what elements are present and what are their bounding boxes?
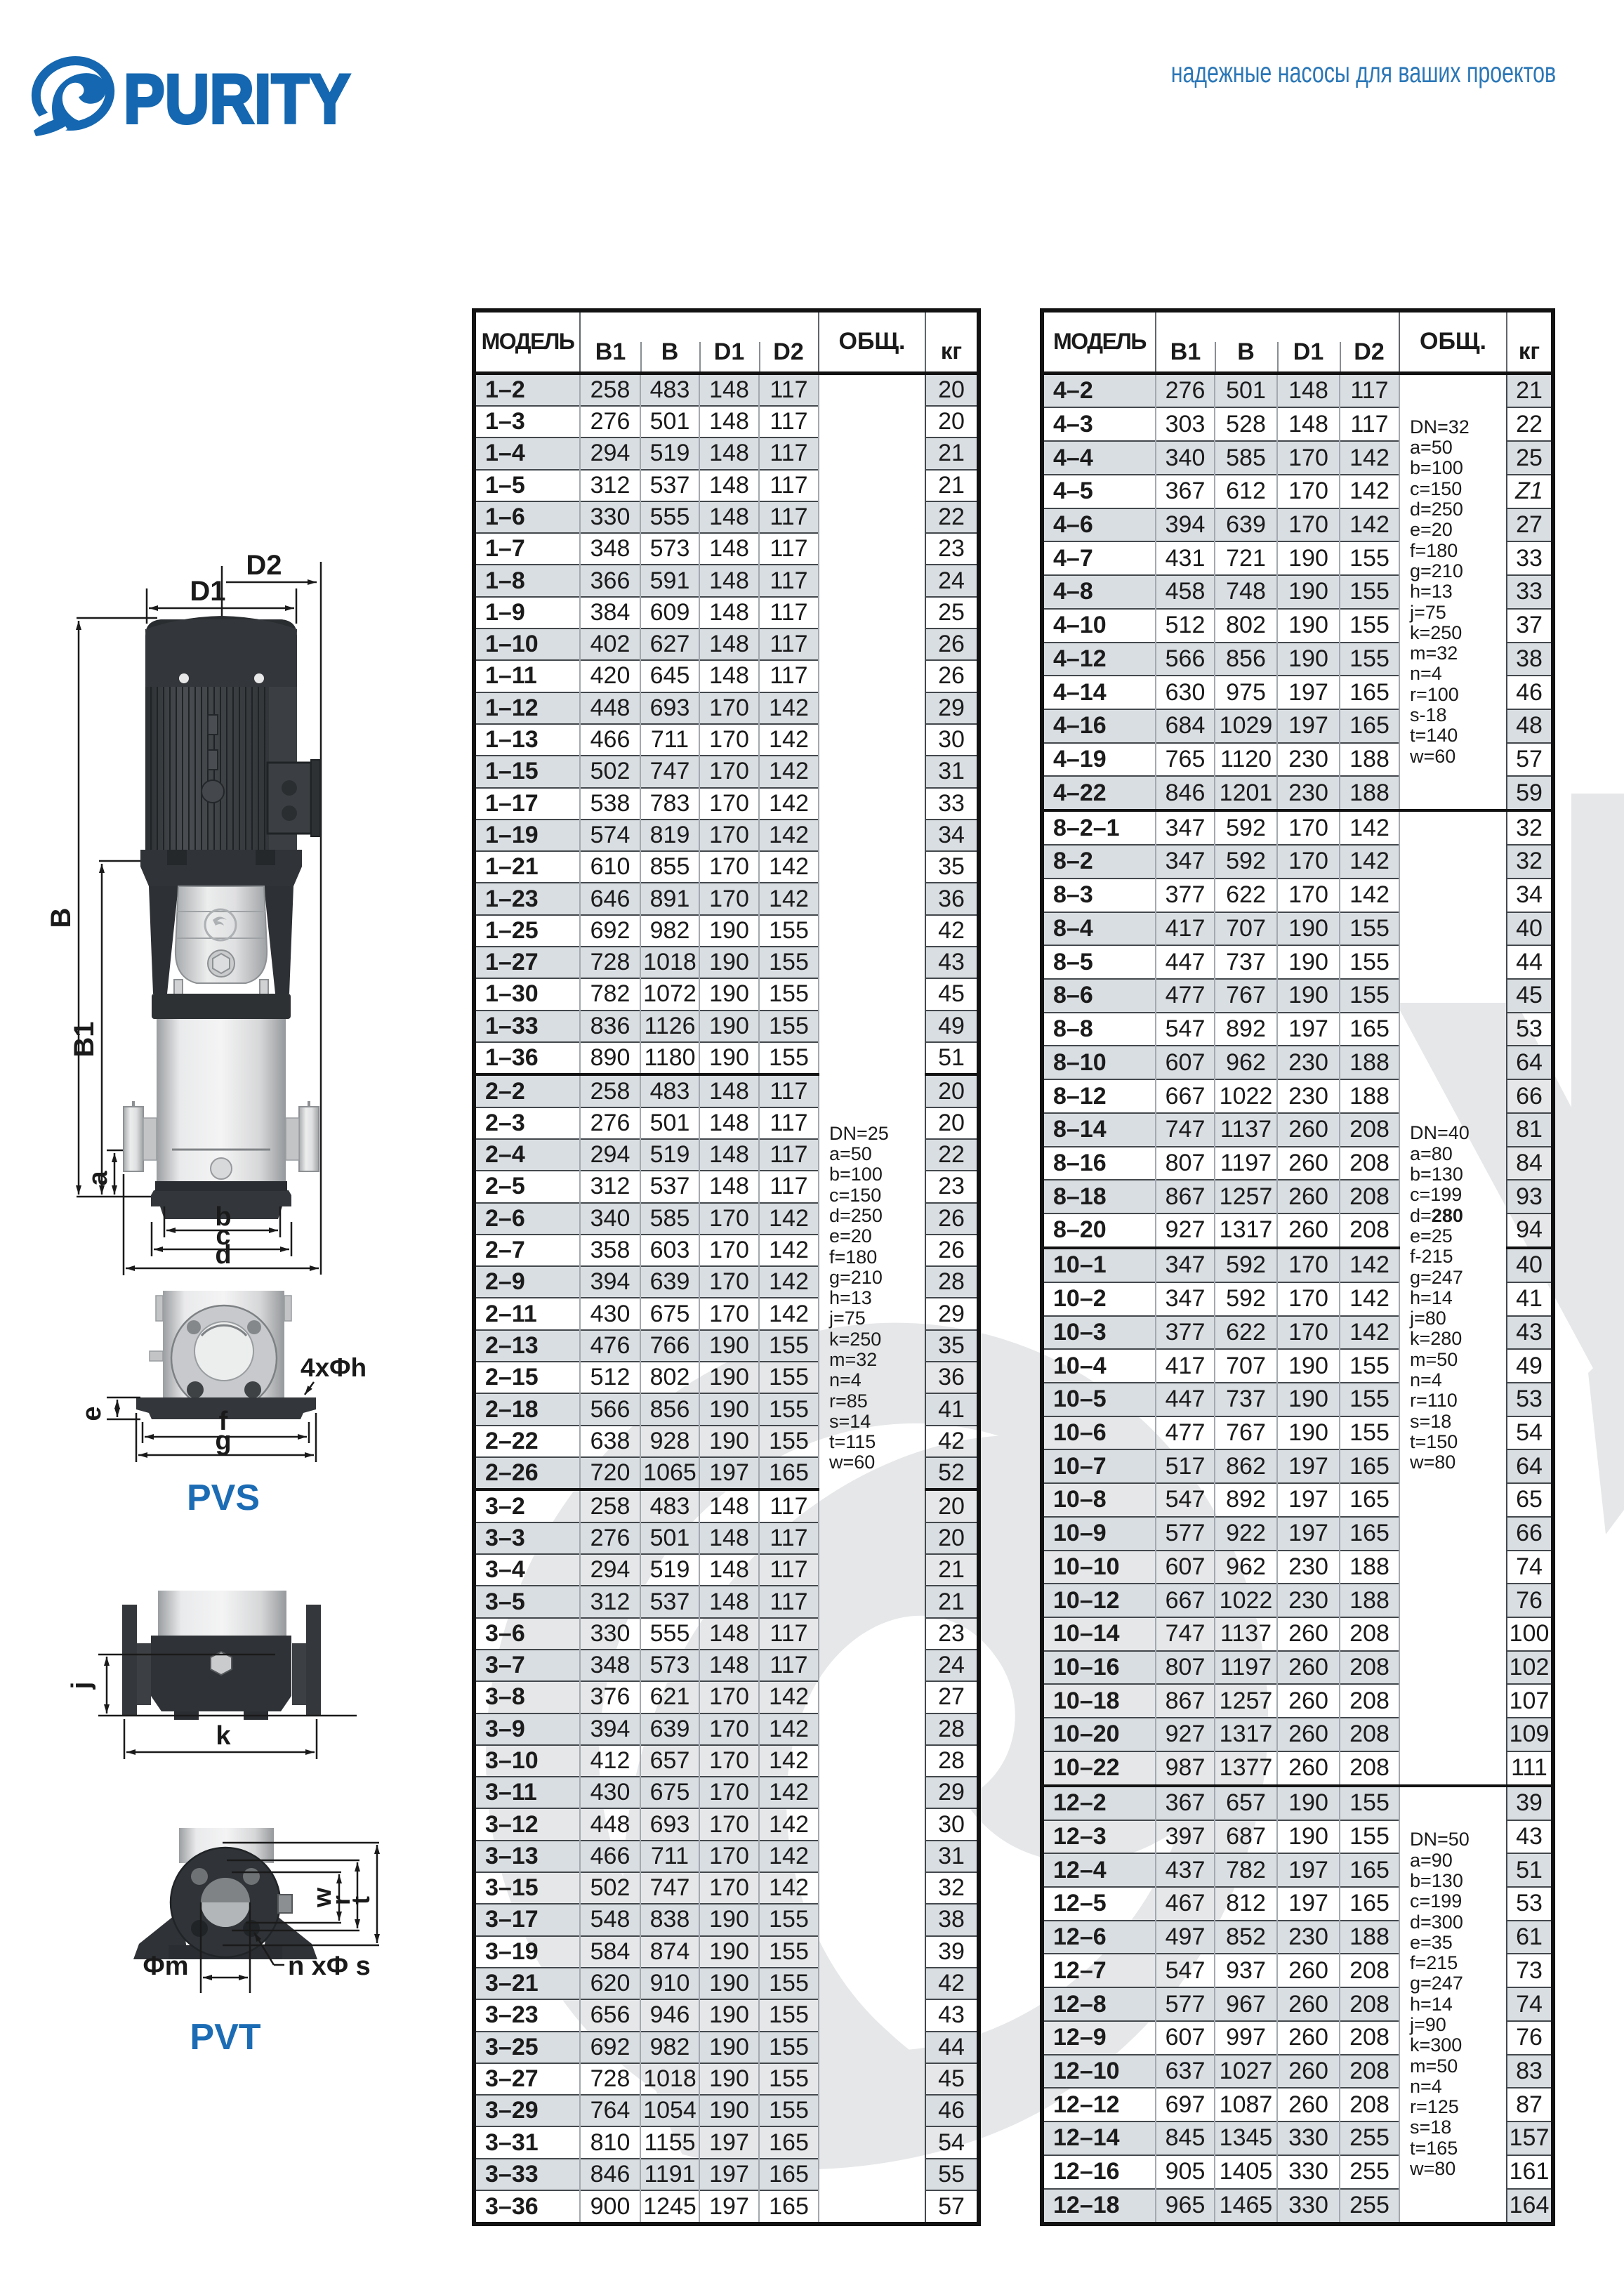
svg-text:PURITY: PURITY (124, 60, 350, 138)
svg-text:j: j (67, 1682, 96, 1690)
svg-text:Φm: Φm (143, 1952, 189, 1981)
svg-text:d: d (215, 1240, 231, 1270)
svg-text:g: g (215, 1426, 231, 1456)
svg-text:n xΦ s: n xΦ s (288, 1952, 371, 1981)
svg-text:PVS: PVS (187, 1478, 260, 1518)
svg-text:D1: D1 (190, 576, 225, 607)
svg-text:t: t (346, 1896, 375, 1905)
svg-text:B1: B1 (69, 1021, 100, 1057)
svg-text:PVT: PVT (190, 2017, 260, 2058)
svg-text:4xΦh: 4xΦh (301, 1353, 367, 1382)
svg-text:D2: D2 (246, 550, 282, 581)
svg-text:k: k (216, 1721, 231, 1751)
svg-text:B: B (46, 908, 77, 928)
svg-text:e: e (77, 1406, 107, 1421)
svg-text:a: a (84, 1171, 113, 1186)
